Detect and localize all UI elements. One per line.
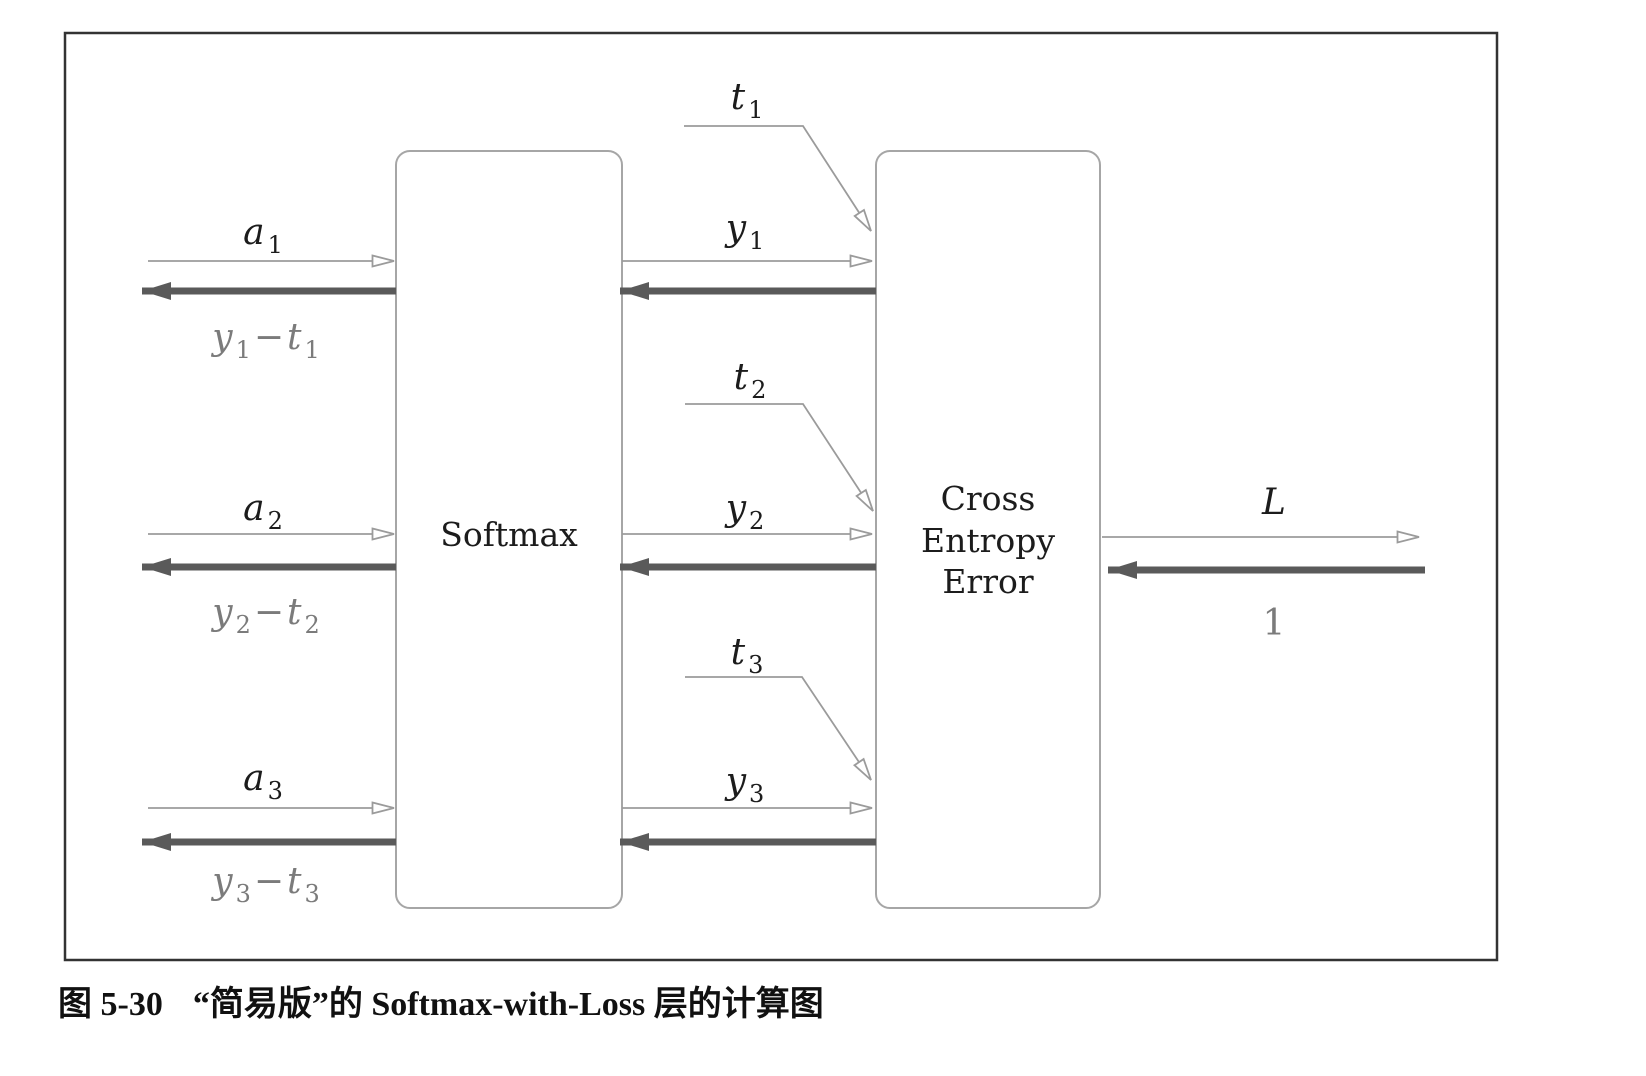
loss-gradient-label: 1 [1263,603,1286,644]
cross-entropy-label-line2: Entropy [921,521,1055,560]
figure-caption: 图 5-30“简易版”的 Softmax-with-Loss 层的计算图 [58,976,1598,1025]
cross-entropy-label-line3: Error [942,562,1034,601]
computation-graph-diagram: Softmax Cross Entropy Error a1 y1−t1 y1 … [0,0,1646,1076]
figure-canvas: Softmax Cross Entropy Error a1 y1−t1 y1 … [0,0,1646,1076]
figure-caption-text: “简易版”的 Softmax-with-Loss 层的计算图 [193,986,824,1023]
cross-entropy-label-line1: Cross [941,479,1036,518]
loss-label: L [1261,482,1286,523]
softmax-label: Softmax [440,515,578,554]
figure-caption-number: 图 5-30 [58,986,163,1023]
